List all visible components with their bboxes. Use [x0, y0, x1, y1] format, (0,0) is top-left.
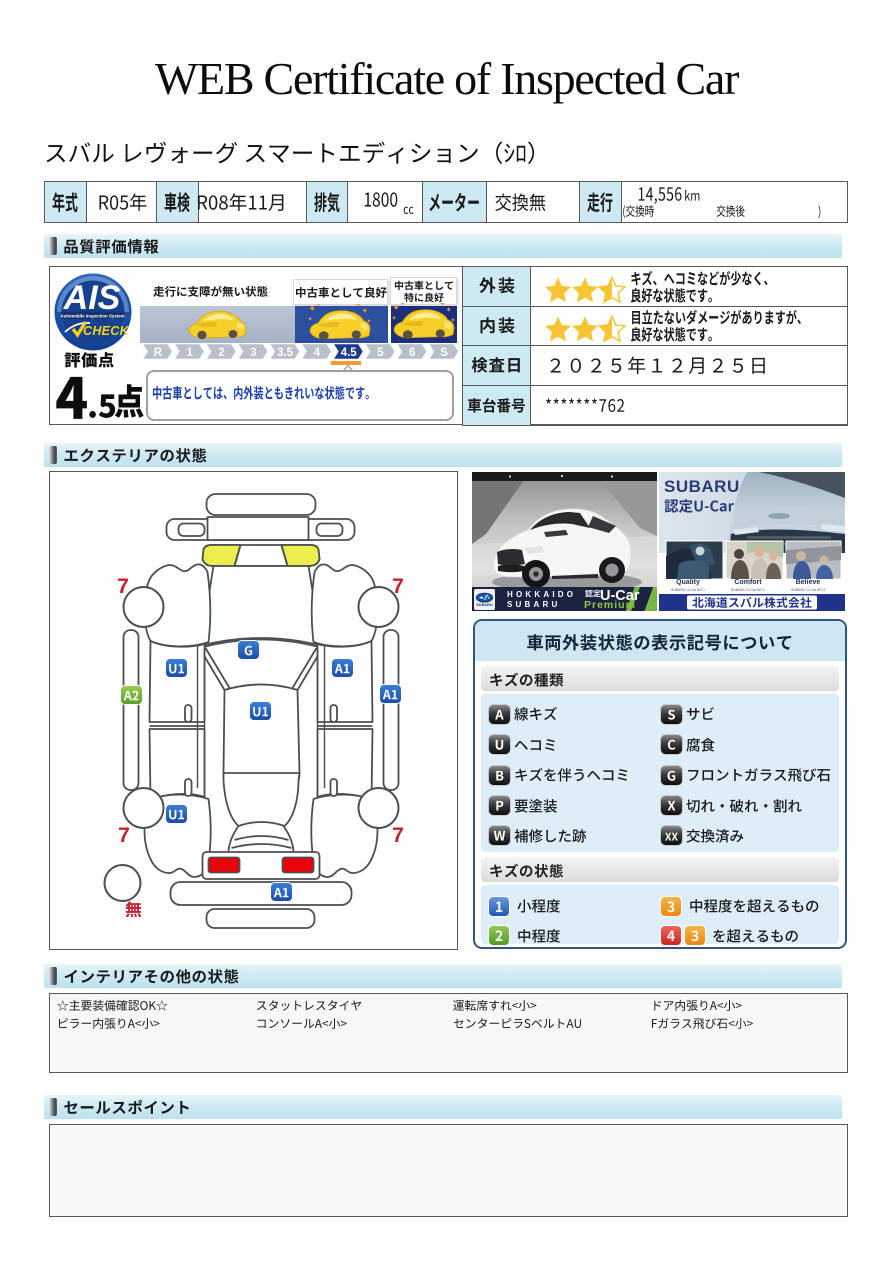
- svg-text:R: R: [154, 347, 163, 359]
- svg-text:3: 3: [250, 347, 256, 359]
- svg-text:2: 2: [218, 347, 224, 359]
- svg-text:AIS: AIS: [63, 279, 121, 317]
- svg-text:6: 6: [409, 347, 415, 359]
- svg-text:1: 1: [186, 347, 193, 359]
- svg-text:CHECK: CHECK: [83, 324, 130, 338]
- svg-text:S: S: [440, 347, 448, 359]
- svg-text:5: 5: [377, 347, 384, 359]
- svg-text:4.5: 4.5: [341, 347, 358, 359]
- svg-text:3.5: 3.5: [277, 347, 294, 359]
- svg-text:Automobile Inspection System: Automobile Inspection System: [60, 313, 124, 318]
- svg-text:4: 4: [314, 347, 321, 359]
